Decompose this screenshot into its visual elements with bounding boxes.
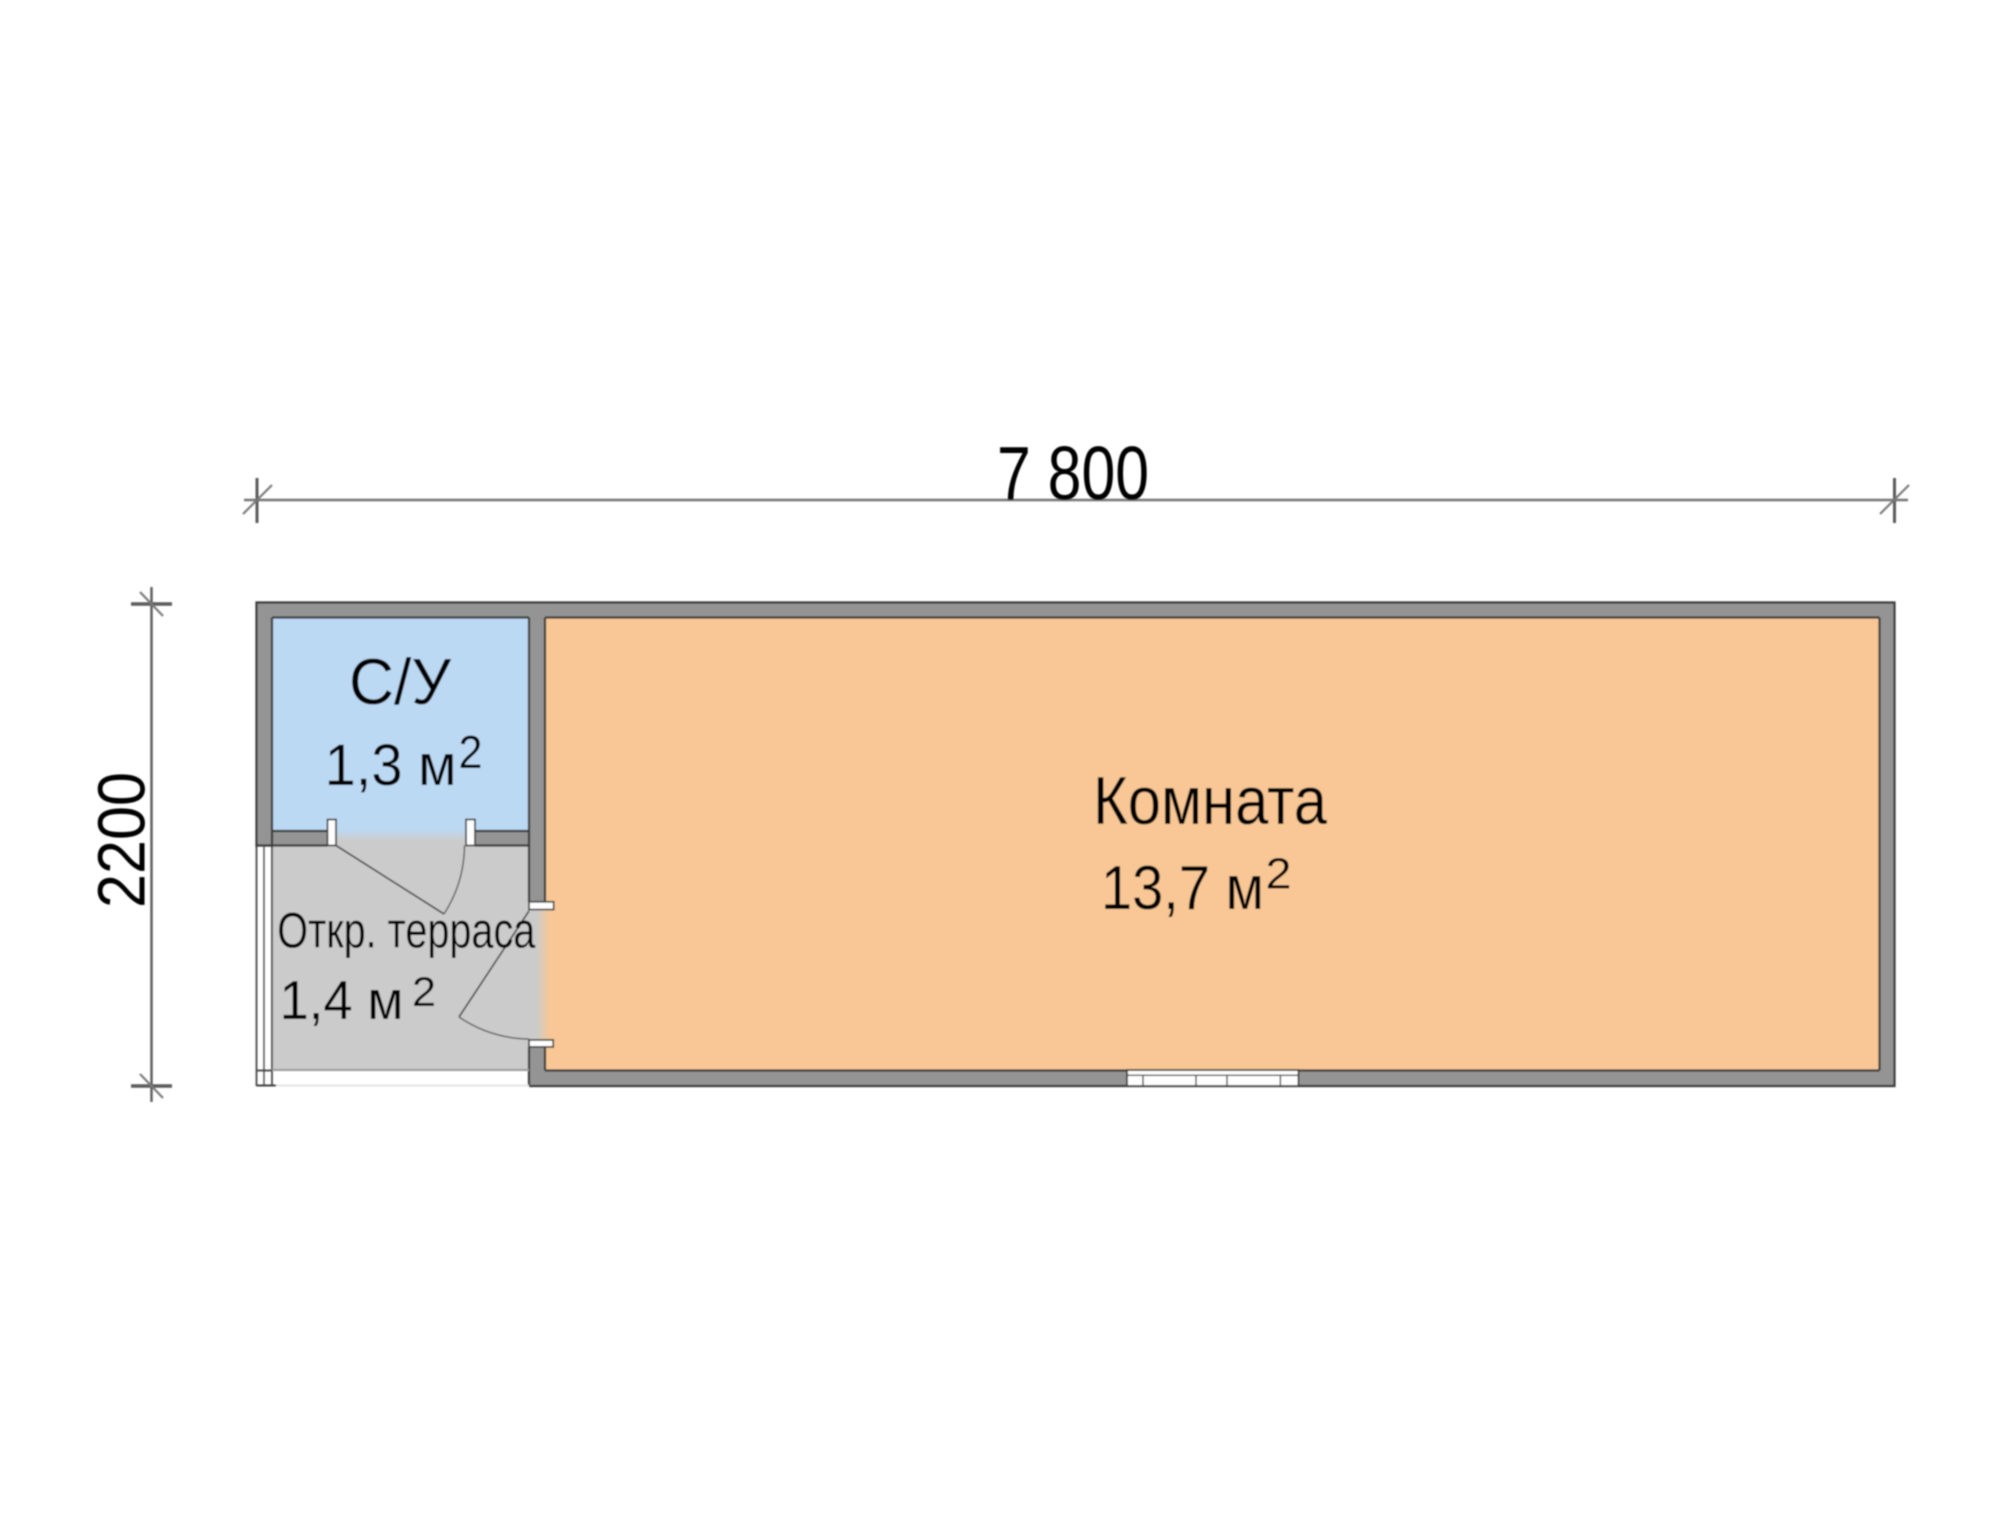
svg-text:2200: 2200 (86, 772, 160, 908)
svg-text:1,3 м: 1,3 м (325, 733, 457, 798)
svg-text:2: 2 (412, 968, 436, 1015)
svg-text:1,4 м: 1,4 м (280, 969, 404, 1031)
svg-text:Комната: Комната (1093, 763, 1327, 839)
svg-text:2: 2 (1266, 850, 1292, 899)
svg-text:7 800: 7 800 (997, 432, 1149, 517)
svg-text:13,7 м: 13,7 м (1101, 854, 1264, 923)
svg-text:2: 2 (459, 726, 483, 778)
svg-text:С/У: С/У (349, 645, 452, 718)
svg-text:Откр. терраса: Откр. терраса (277, 903, 535, 959)
